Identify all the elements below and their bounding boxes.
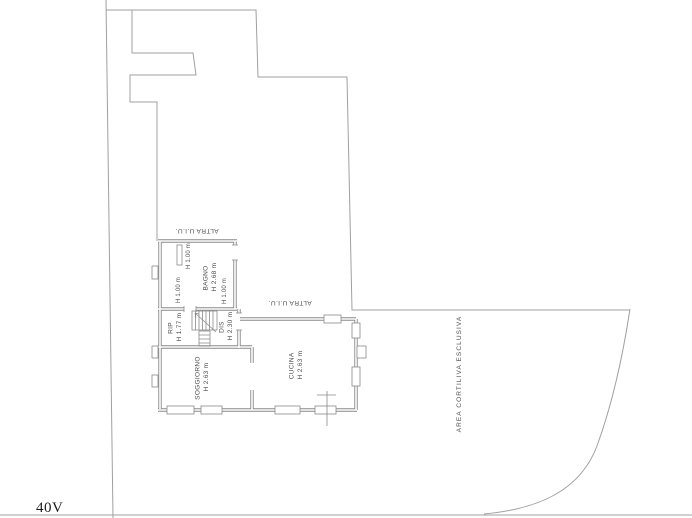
- window-right-2: [352, 367, 360, 386]
- window-top-kitchen: [324, 315, 341, 323]
- courtyard-area-label: AREA CORTILIVA ESCLUSIVA: [456, 316, 463, 433]
- window-bottom-2: [201, 406, 222, 414]
- sill-left-3: [152, 375, 158, 387]
- height-mark-3: H 1.00 m: [222, 278, 228, 304]
- floor-plan-sheet: ALTRA U.I.U. ALTRA U.I.U. BAGNO H 2.68 m…: [0, 0, 692, 518]
- other-unit-label-right: ALTRA U.I.U.: [268, 299, 311, 306]
- boundary-top-line: [106, 10, 630, 310]
- bagno-height: H 2.68 m: [211, 263, 218, 292]
- room-label-rip: RIP H 1.77 m: [168, 313, 184, 342]
- sheet-code: 40V: [36, 500, 63, 516]
- soggiorno-height: H 2.63 m: [203, 363, 210, 392]
- dis-height: H 2.30 m: [227, 312, 234, 341]
- window-bottom-4: [315, 406, 336, 414]
- floor-plan-svg: ALTRA U.I.U. ALTRA U.I.U. BAGNO H 2.68 m…: [0, 0, 692, 518]
- other-unit-label-top: ALTRA U.I.U.: [175, 227, 218, 234]
- staircase: [192, 311, 217, 346]
- height-mark-1: H 1.00 m: [186, 243, 192, 269]
- bagno-name: BAGNO: [203, 266, 210, 291]
- parcel-boundary: [0, 0, 692, 518]
- bathroom-fixture: [177, 245, 182, 265]
- sill-left-1: [152, 266, 158, 279]
- soggiorno-name: SOGGIORNO: [195, 356, 202, 400]
- boundary-step-line: [130, 10, 196, 241]
- cucina-height: H 2.63 m: [297, 351, 304, 380]
- dis-name: DIS: [219, 321, 226, 333]
- boundary-left-line: [106, 0, 113, 518]
- chimney-notch: [357, 346, 366, 358]
- window-bottom-1: [167, 406, 194, 414]
- window-bottom-3: [275, 406, 300, 414]
- boundary-curve: [484, 309, 630, 514]
- window-right-1: [352, 323, 360, 338]
- room-label-soggiorno: SOGGIORNO H 2.63 m: [195, 354, 211, 400]
- stair-lower-rungs: [199, 335, 210, 343]
- stair-flight-lower: [199, 331, 210, 346]
- rip-height: H 1.77 m: [176, 313, 183, 342]
- height-mark-2: H 1.00 m: [176, 277, 182, 303]
- room-label-dis: DIS H 2.30 m: [219, 312, 235, 341]
- sill-left-2: [152, 346, 158, 358]
- windows: [152, 266, 366, 414]
- cucina-name: CUCINA: [289, 352, 296, 379]
- rip-name: RIP: [168, 322, 175, 334]
- room-label-bagno: BAGNO H 2.68 m: [203, 263, 219, 292]
- room-label-cucina: CUCINA H 2.63 m: [289, 351, 305, 380]
